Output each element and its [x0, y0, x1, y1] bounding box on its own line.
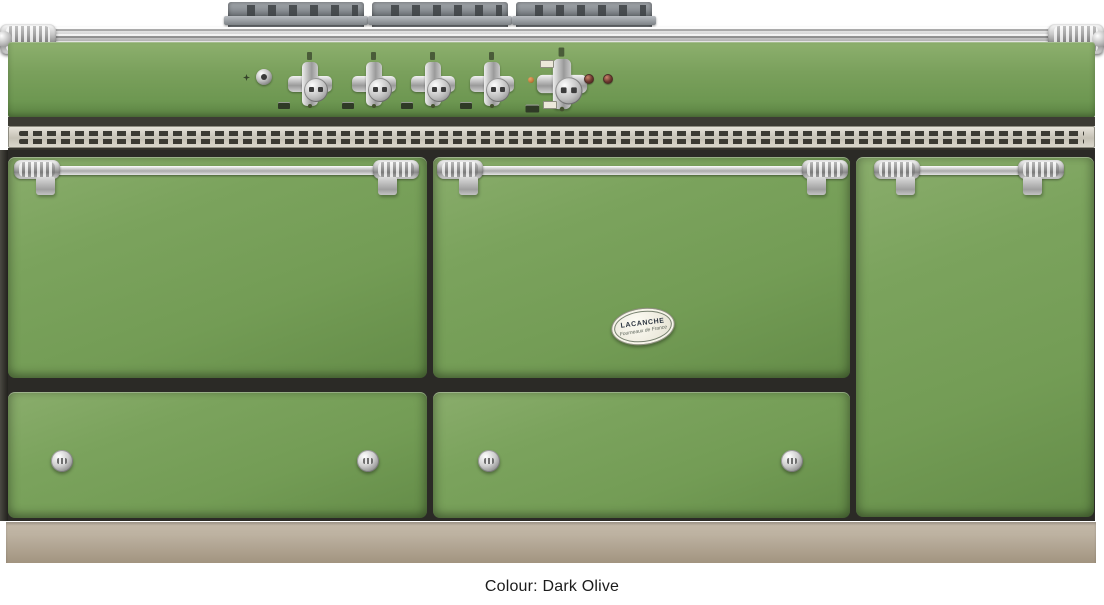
burner-knob [282, 56, 338, 112]
drawer-knob [781, 450, 803, 472]
handle-foot [378, 177, 397, 195]
burner-knob-icon [411, 62, 455, 106]
oven-door-left-handle [14, 156, 419, 198]
handle-foot [1023, 177, 1042, 195]
handle-foot [36, 177, 55, 195]
burner-knob-icon [470, 62, 514, 106]
knob-hub [304, 78, 328, 102]
knob-dot [490, 104, 494, 108]
burner-knob-icon [352, 62, 396, 106]
drawer-knob [357, 450, 379, 472]
knob-setting-mark [307, 52, 312, 60]
handle-foot [459, 177, 478, 195]
knob-hub [555, 77, 582, 104]
colour-caption: Colour: Dark Olive [0, 578, 1104, 596]
ignition-button [256, 69, 272, 85]
thermostat-label [543, 101, 557, 109]
pan-supports [228, 0, 652, 28]
burner-knob [346, 56, 402, 112]
knob-label [460, 102, 472, 109]
burner-knob [464, 56, 520, 112]
handle-foot [807, 177, 826, 195]
knob-dot [308, 104, 312, 108]
thermostat-label [540, 60, 554, 68]
amber-indicator-icon [528, 77, 534, 83]
burner-knob [405, 56, 461, 112]
storage-door-handle [874, 156, 1064, 198]
drawer-knob [51, 450, 73, 472]
knob-label [278, 102, 290, 109]
knob-dot [431, 104, 435, 108]
vent-grille [8, 126, 1095, 148]
plinth [6, 522, 1096, 563]
knob-hub [486, 78, 510, 102]
knob-dot [372, 104, 376, 108]
oven-indicator-light [584, 74, 594, 84]
handle-bar [449, 166, 836, 175]
pan-support-icon [516, 2, 652, 27]
handle-foot [896, 177, 915, 195]
knob-label [342, 102, 354, 109]
knob-setting-mark [371, 52, 376, 60]
cabinet-side [0, 150, 8, 521]
knob-label [526, 105, 540, 113]
knob-setting-mark [559, 48, 565, 57]
handle-bar [26, 166, 407, 175]
drawer-knob [478, 450, 500, 472]
knob-setting-mark [430, 52, 435, 60]
oven-door-middle-handle [437, 156, 848, 198]
knob-dot [560, 107, 565, 112]
product-image: LACANCHE Fourneaux de France Colour: Dar… [0, 0, 1104, 605]
burner-knob-icon [288, 62, 332, 106]
pan-support-icon [228, 2, 364, 27]
pan-support-icon [372, 2, 508, 27]
oven-indicator-light [603, 74, 613, 84]
knob-hub [368, 78, 392, 102]
knob-label [401, 102, 413, 109]
knob-hub [427, 78, 451, 102]
panel-shadow [8, 117, 1095, 126]
knob-setting-mark [489, 52, 494, 60]
storage-door-right [856, 157, 1094, 517]
